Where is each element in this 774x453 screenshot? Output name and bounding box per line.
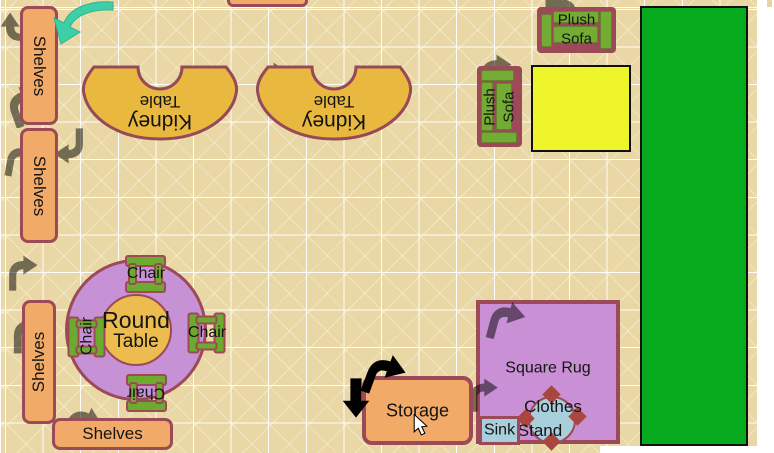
- floor-plan-page: Shelves Shelves Shelves Shelves Kidney T…: [0, 0, 774, 453]
- mouse-cursor-icon: [413, 414, 428, 436]
- scrollbar-sliver: [767, 0, 772, 7]
- ghost-rotate-arrow-icon: [482, 300, 526, 344]
- sink[interactable]: Sink: [479, 416, 520, 445]
- clothes-stand-label-line1: Clothes: [524, 398, 582, 416]
- shelves-label: Shelves: [82, 425, 142, 443]
- kidney-table-1-label: Kidney Table: [82, 92, 238, 132]
- chair-left-label: Chair: [80, 317, 97, 355]
- move-down-arrow-icon[interactable]: [342, 376, 370, 420]
- shelves-mid-left[interactable]: Shelves: [20, 128, 58, 243]
- kidney-table-2-label: Kidney Table: [256, 92, 412, 132]
- round-table-label: Round Table: [102, 308, 170, 352]
- yellow-mat[interactable]: [531, 65, 631, 152]
- plush-sofa-top[interactable]: Plush Sofa: [537, 7, 616, 53]
- chair-bottom-label: Chair: [127, 384, 165, 401]
- chair-top-label: Chair: [127, 266, 165, 283]
- ghost-rotate-arrow-icon: [2, 255, 40, 293]
- plush-sofa-left[interactable]: Plush Sofa: [477, 66, 522, 147]
- shelves-label: Shelves: [30, 332, 48, 392]
- canvas-right-margin: [757, 0, 774, 453]
- sink-label: Sink: [484, 422, 515, 439]
- teal-rotate-arrow-icon[interactable]: [46, 0, 114, 46]
- clothes-stand-label-line2: Stand: [518, 422, 562, 440]
- chair-right-label: Chair: [188, 325, 226, 342]
- offscreen-item-sliver[interactable]: [227, 0, 308, 7]
- shelves-label: Shelves: [30, 155, 48, 215]
- canvas-bottom-margin: [600, 446, 757, 453]
- shelves-bottom[interactable]: Shelves: [52, 418, 173, 450]
- shelves-lower-left[interactable]: Shelves: [22, 300, 56, 424]
- green-area[interactable]: [640, 6, 748, 446]
- square-rug-label: Square Rug: [505, 361, 590, 378]
- plush-sofa-label: Plush Sofa: [481, 88, 519, 126]
- plush-sofa-label: Plush Sofa: [558, 11, 596, 49]
